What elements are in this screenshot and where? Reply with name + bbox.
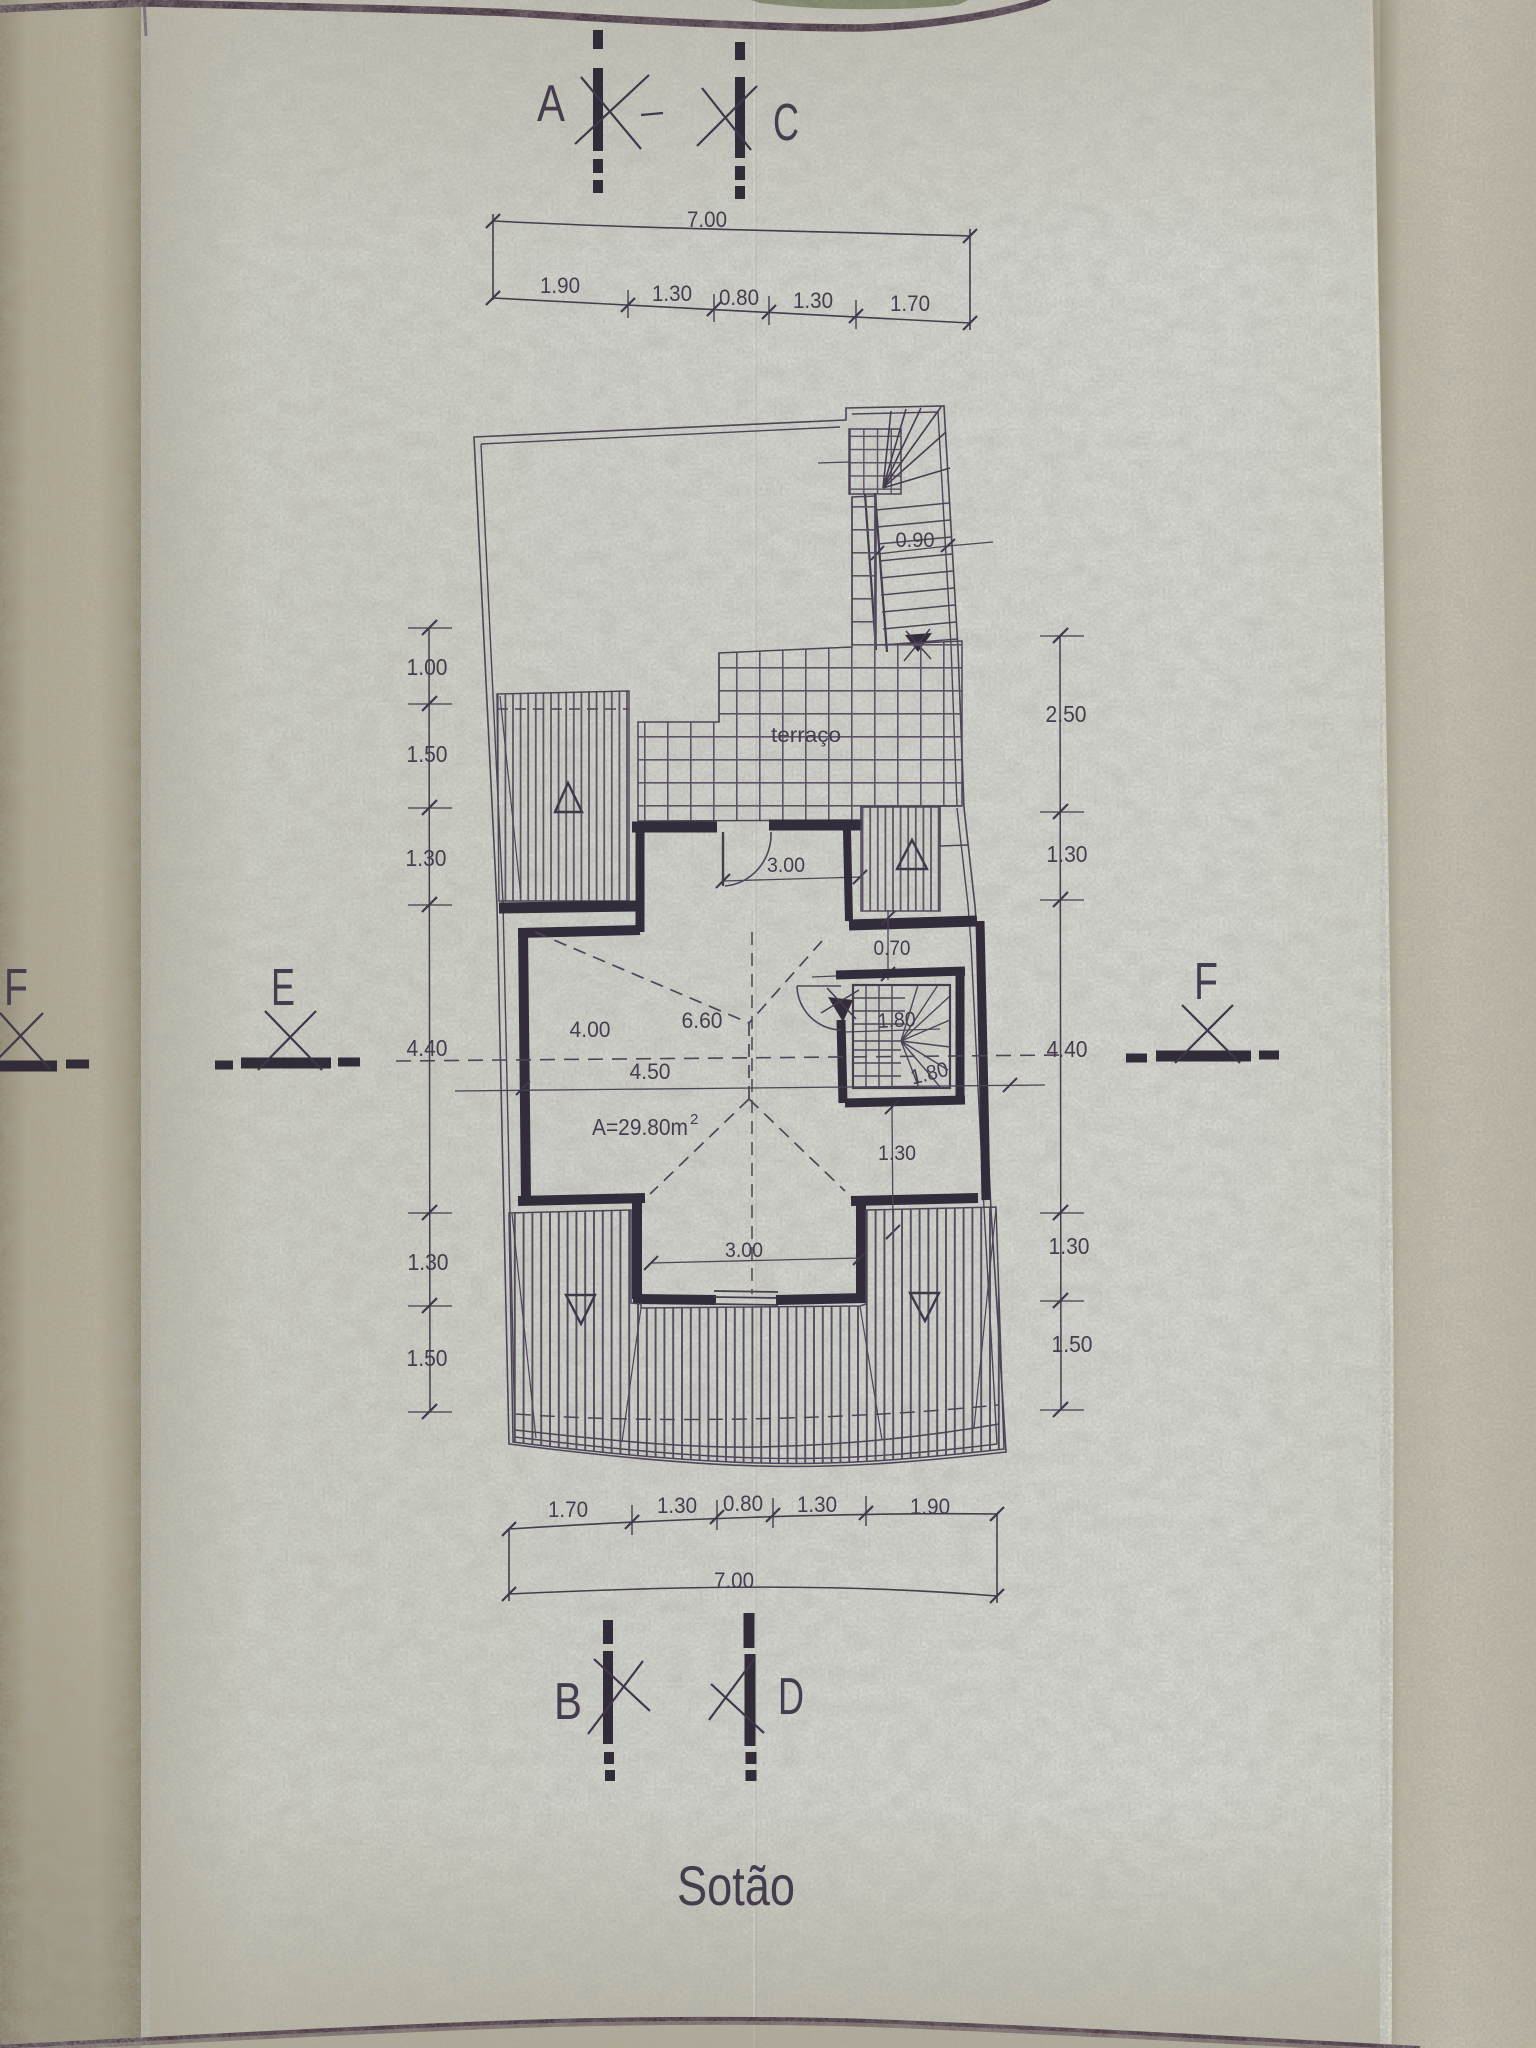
svg-text:0.90: 0.90 — [896, 529, 935, 552]
svg-text:3.00: 3.00 — [725, 1239, 763, 1262]
svg-text:6.60: 6.60 — [682, 1008, 723, 1033]
svg-text:F: F — [4, 959, 28, 1017]
svg-text:1.30: 1.30 — [793, 288, 833, 313]
svg-text:1.70: 1.70 — [548, 1497, 588, 1522]
svg-text:D: D — [778, 1668, 804, 1726]
svg-text:1.90: 1.90 — [910, 1494, 950, 1519]
svg-text:Sotão: Sotão — [677, 1854, 795, 1917]
svg-text:4.40: 4.40 — [407, 1035, 448, 1061]
svg-text:1.30: 1.30 — [652, 281, 692, 306]
svg-text:1.00: 1.00 — [407, 654, 448, 680]
svg-text:1.30: 1.30 — [797, 1492, 837, 1517]
svg-text:1.30: 1.30 — [406, 845, 447, 871]
svg-text:7.00: 7.00 — [714, 1568, 754, 1593]
svg-text:3.00: 3.00 — [767, 854, 805, 877]
svg-text:A=29.80m: A=29.80m — [592, 1114, 688, 1140]
svg-text:7.00: 7.00 — [687, 207, 727, 232]
svg-text:A: A — [537, 75, 565, 133]
svg-text:0.80: 0.80 — [723, 1491, 763, 1516]
svg-text:1.50: 1.50 — [1052, 1331, 1093, 1357]
svg-text:E: E — [271, 959, 295, 1017]
svg-text:1.70: 1.70 — [890, 291, 930, 316]
svg-text:1.50: 1.50 — [407, 741, 448, 767]
svg-text:B: B — [554, 1673, 582, 1731]
svg-text:4.00: 4.00 — [570, 1017, 611, 1042]
svg-text:F: F — [1194, 953, 1218, 1011]
svg-text:2.50: 2.50 — [1046, 701, 1087, 727]
svg-text:terraço: terraço — [771, 724, 841, 747]
svg-text:1.80: 1.80 — [877, 1008, 916, 1033]
svg-text:1.30: 1.30 — [408, 1249, 449, 1275]
svg-text:0.70: 0.70 — [874, 937, 911, 960]
svg-text:1.30: 1.30 — [1049, 1233, 1090, 1259]
svg-text:C: C — [773, 94, 799, 152]
svg-text:1.30: 1.30 — [657, 1493, 697, 1518]
svg-text:4.40: 4.40 — [1047, 1036, 1088, 1062]
svg-text:0.80: 0.80 — [719, 285, 759, 310]
svg-text:1.50: 1.50 — [407, 1345, 448, 1371]
svg-text:1.90: 1.90 — [540, 273, 580, 298]
svg-text:1.30: 1.30 — [878, 1142, 916, 1165]
svg-text:4.50: 4.50 — [630, 1059, 671, 1084]
svg-text:2: 2 — [690, 1111, 698, 1128]
svg-text:1.30: 1.30 — [1047, 841, 1088, 867]
